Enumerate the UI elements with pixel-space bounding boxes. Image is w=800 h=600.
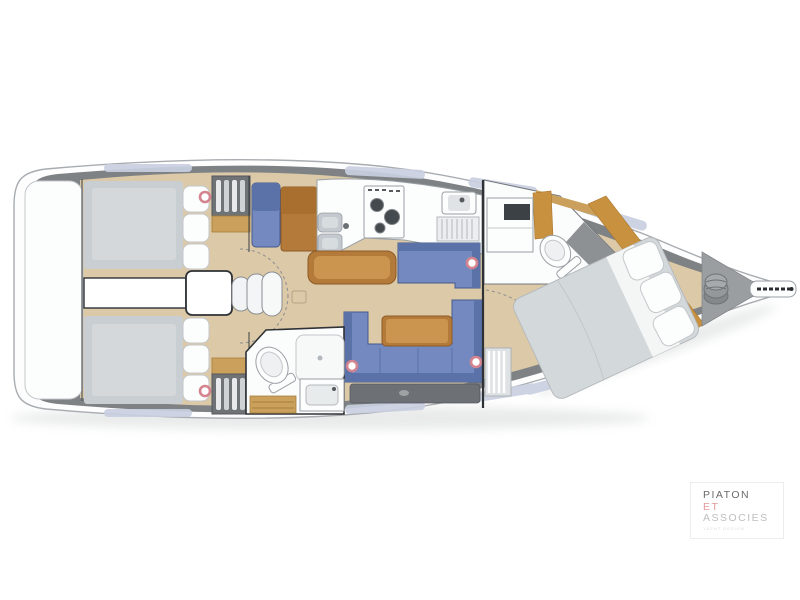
galley-sink-2 — [442, 192, 476, 214]
stove — [364, 186, 404, 238]
deck-hatch-icon — [200, 386, 210, 396]
deck-hatch-icon — [467, 258, 477, 268]
hanging-locker — [212, 176, 250, 232]
head-drawers — [250, 396, 296, 413]
logo-tagline: YACHT DESIGN — [703, 527, 783, 531]
designer-logo: PIATON ET ASSOCIES YACHT DESIGN — [690, 482, 784, 539]
deck-hatch-icon — [471, 357, 481, 367]
bowsprit — [750, 281, 796, 297]
deck-hatch-icon — [347, 361, 357, 371]
swim-platform — [25, 179, 83, 401]
nav-station — [252, 183, 317, 251]
head-vanity — [487, 198, 533, 252]
boat-floorplan — [0, 0, 800, 600]
engine-compartment — [84, 278, 186, 308]
galley-island — [308, 251, 396, 284]
anchor-chain-icon — [704, 274, 728, 304]
hanging-locker — [212, 358, 250, 414]
floorplan-canvas — [0, 0, 800, 600]
logo-line-3: ASSOCIES — [703, 513, 783, 525]
salon-table — [382, 316, 452, 346]
settee-storage — [350, 384, 480, 403]
head-vanity — [300, 379, 344, 411]
deck-hatch-icon — [200, 192, 210, 202]
aft-head — [246, 327, 344, 414]
salon-settee-forward — [398, 243, 480, 288]
shower-pan — [296, 335, 344, 381]
slatted-bench — [485, 348, 511, 396]
dish-drainer — [437, 217, 479, 241]
